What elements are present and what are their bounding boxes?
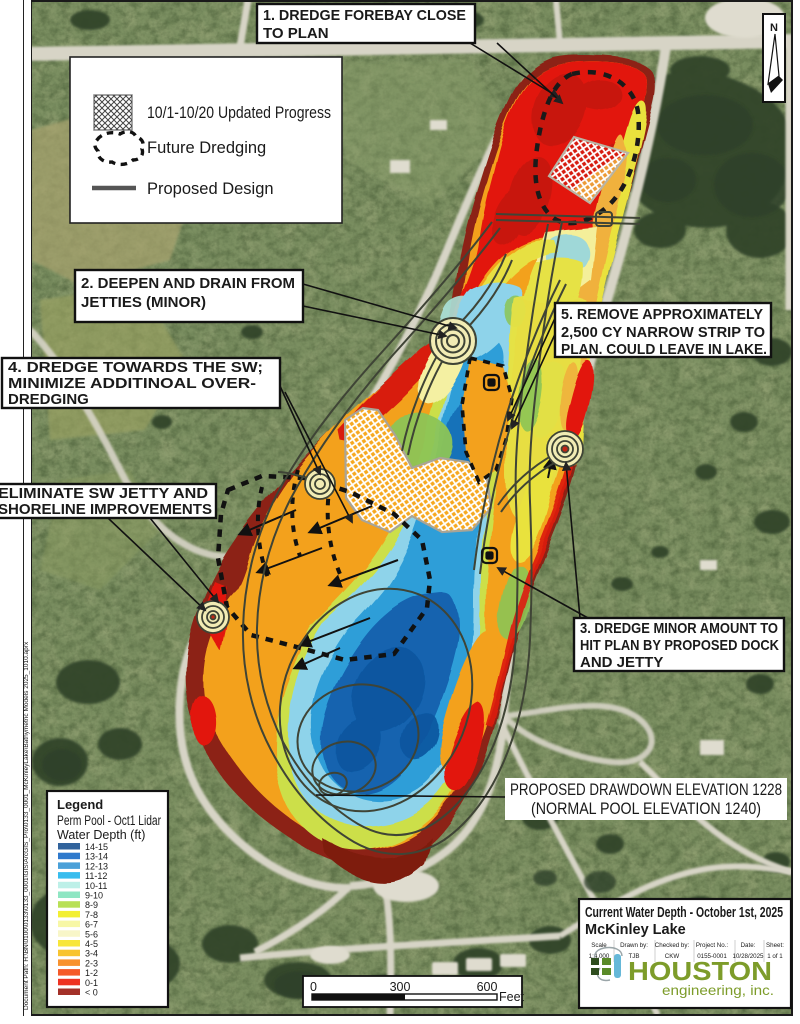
- svg-text:Legend: Legend: [57, 797, 103, 812]
- svg-text:0: 0: [310, 980, 317, 994]
- svg-text:3-4: 3-4: [85, 949, 98, 959]
- svg-text:Perm Pool - Oct1 Lidar: Perm Pool - Oct1 Lidar: [57, 813, 161, 828]
- svg-text:Feet: Feet: [499, 990, 525, 1004]
- svg-text:Checked by:: Checked by:: [655, 942, 690, 949]
- svg-text:7-8: 7-8: [85, 910, 98, 920]
- svg-text:engineering, inc.: engineering, inc.: [662, 982, 774, 998]
- svg-text:MINIMIZE ADDITINOAL OVER-: MINIMIZE ADDITINOAL OVER-: [8, 375, 256, 392]
- svg-text:4. DREDGE TOWARDS THE SW;: 4. DREDGE TOWARDS THE SW;: [8, 359, 263, 376]
- svg-text:Date:: Date:: [741, 942, 756, 949]
- svg-text:0-1: 0-1: [85, 978, 98, 988]
- svg-text:5. REMOVE APPROXIMATELY: 5. REMOVE APPROXIMATELY: [561, 306, 763, 323]
- svg-text:Water Depth (ft): Water Depth (ft): [57, 828, 145, 842]
- svg-text:< 0: < 0: [85, 988, 98, 998]
- svg-text:Project No.:: Project No.:: [696, 942, 729, 949]
- svg-text:Current Water Depth - October: Current Water Depth - October 1st, 2025: [585, 905, 783, 921]
- svg-text:10/1-10/20 Updated Progress: 10/1-10/20 Updated Progress: [147, 104, 331, 122]
- svg-text:9-10: 9-10: [85, 891, 103, 901]
- svg-text:2,500 CY NARROW STRIP TO: 2,500 CY NARROW STRIP TO: [561, 324, 765, 341]
- svg-text:1-2: 1-2: [85, 968, 98, 978]
- svg-text:SHORELINE IMPROVEMENTS: SHORELINE IMPROVEMENTS: [0, 501, 212, 518]
- svg-text:N: N: [770, 22, 778, 34]
- svg-text:6-7: 6-7: [85, 920, 98, 930]
- svg-text:2. DEEPEN AND DRAIN FROM: 2. DEEPEN AND DRAIN FROM: [81, 275, 295, 292]
- svg-text:1. DREDGE FOREBAY CLOSE: 1. DREDGE FOREBAY CLOSE: [263, 7, 466, 24]
- svg-text:Sheet:: Sheet:: [766, 942, 784, 949]
- svg-text:TO PLAN: TO PLAN: [263, 25, 329, 42]
- svg-text:10-11: 10-11: [85, 881, 107, 891]
- svg-text:Drawn by:: Drawn by:: [620, 942, 648, 949]
- svg-text:13-14: 13-14: [85, 852, 108, 862]
- svg-text:Document Path: H:\BN\0100\0133: Document Path: H:\BN\0100\0133\0133_0001…: [23, 641, 30, 1010]
- svg-text:600: 600: [477, 980, 498, 994]
- svg-text:HIT PLAN BY PROPOSED DOCK: HIT PLAN BY PROPOSED DOCK: [580, 637, 779, 654]
- svg-text:4-5: 4-5: [85, 939, 98, 949]
- svg-text:Future Dredging: Future Dredging: [147, 139, 266, 157]
- svg-text:2-3: 2-3: [85, 958, 98, 968]
- svg-text:(NORMAL POOL ELEVATION 1240): (NORMAL POOL ELEVATION 1240): [531, 799, 761, 818]
- svg-text:8-9: 8-9: [85, 900, 98, 910]
- svg-text:300: 300: [390, 980, 411, 994]
- svg-text:JETTIES (MINOR): JETTIES (MINOR): [81, 294, 206, 311]
- svg-text:ELIMINATE SW JETTY AND: ELIMINATE SW JETTY AND: [0, 485, 208, 502]
- svg-text:12-13: 12-13: [85, 861, 108, 871]
- svg-text:McKinley Lake: McKinley Lake: [585, 922, 686, 938]
- svg-text:5-6: 5-6: [85, 929, 98, 939]
- svg-text:DREDGING: DREDGING: [8, 391, 89, 408]
- svg-text:11-12: 11-12: [85, 871, 107, 881]
- svg-text:3. DREDGE MINOR AMOUNT TO: 3. DREDGE MINOR AMOUNT TO: [580, 620, 778, 637]
- svg-text:PLAN. COULD LEAVE IN LAKE.: PLAN. COULD LEAVE IN LAKE.: [561, 341, 767, 358]
- svg-text:Proposed Design: Proposed Design: [147, 180, 274, 198]
- svg-text:AND JETTY: AND JETTY: [580, 654, 663, 671]
- svg-text:14-15: 14-15: [85, 842, 108, 852]
- svg-text:PROPOSED DRAWDOWN ELEVATION 12: PROPOSED DRAWDOWN ELEVATION 1228: [510, 780, 782, 799]
